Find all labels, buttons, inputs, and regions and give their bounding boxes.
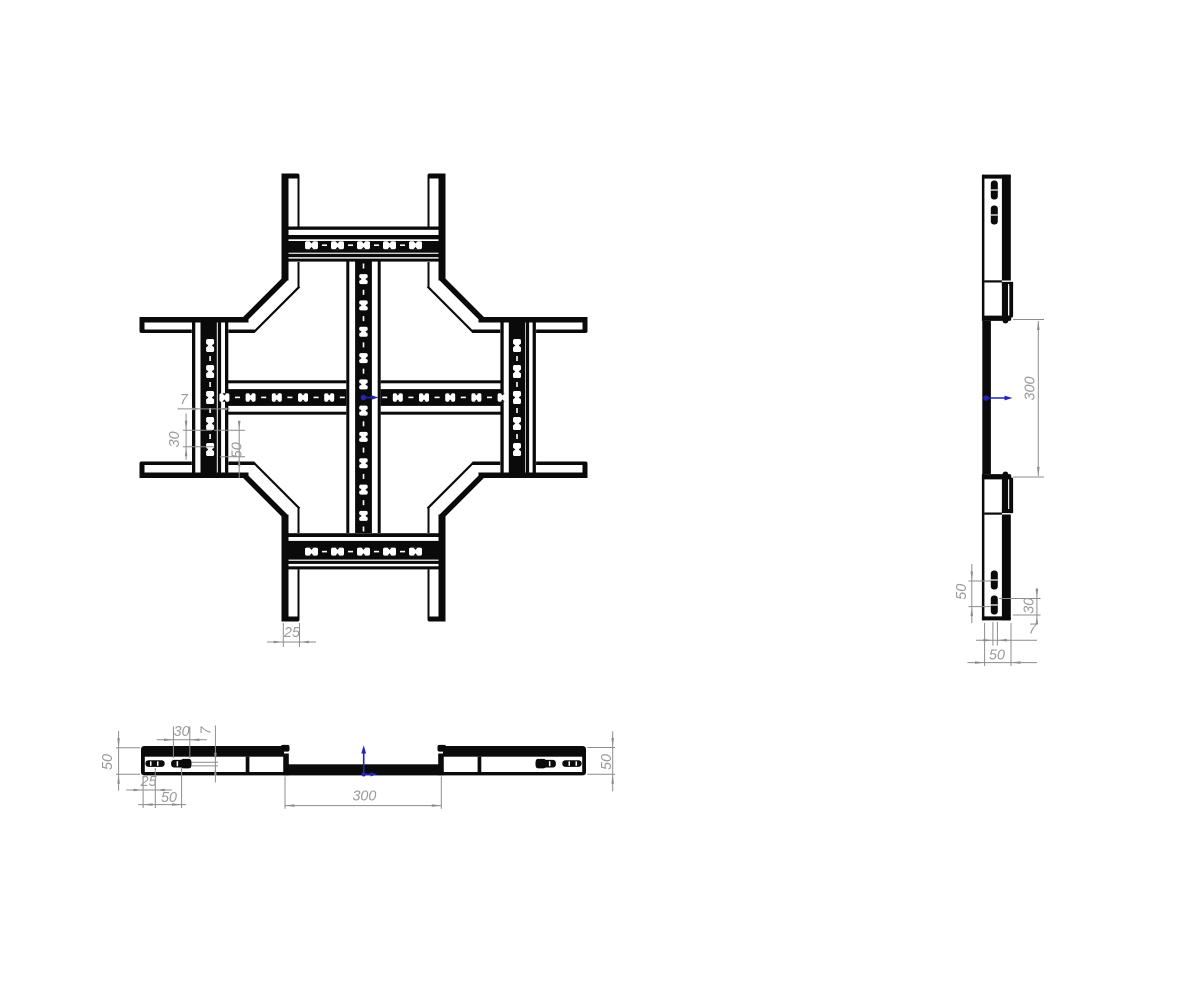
svg-text:300: 300 — [352, 789, 376, 805]
svg-text:30: 30 — [1021, 598, 1037, 614]
svg-text:50: 50 — [161, 790, 177, 806]
svg-text:50: 50 — [989, 647, 1005, 663]
svg-text:50: 50 — [100, 754, 116, 770]
svg-text:7: 7 — [198, 726, 214, 735]
svg-text:7: 7 — [180, 392, 189, 408]
svg-text:30: 30 — [174, 724, 190, 740]
svg-text:300: 300 — [1023, 377, 1039, 401]
svg-text:25: 25 — [140, 774, 157, 790]
svg-text:50: 50 — [229, 442, 245, 458]
svg-text:25: 25 — [283, 625, 300, 641]
svg-text:50: 50 — [599, 754, 615, 770]
svg-text:50: 50 — [954, 584, 970, 600]
svg-text:7: 7 — [1029, 621, 1038, 637]
svg-text:30: 30 — [167, 431, 183, 447]
